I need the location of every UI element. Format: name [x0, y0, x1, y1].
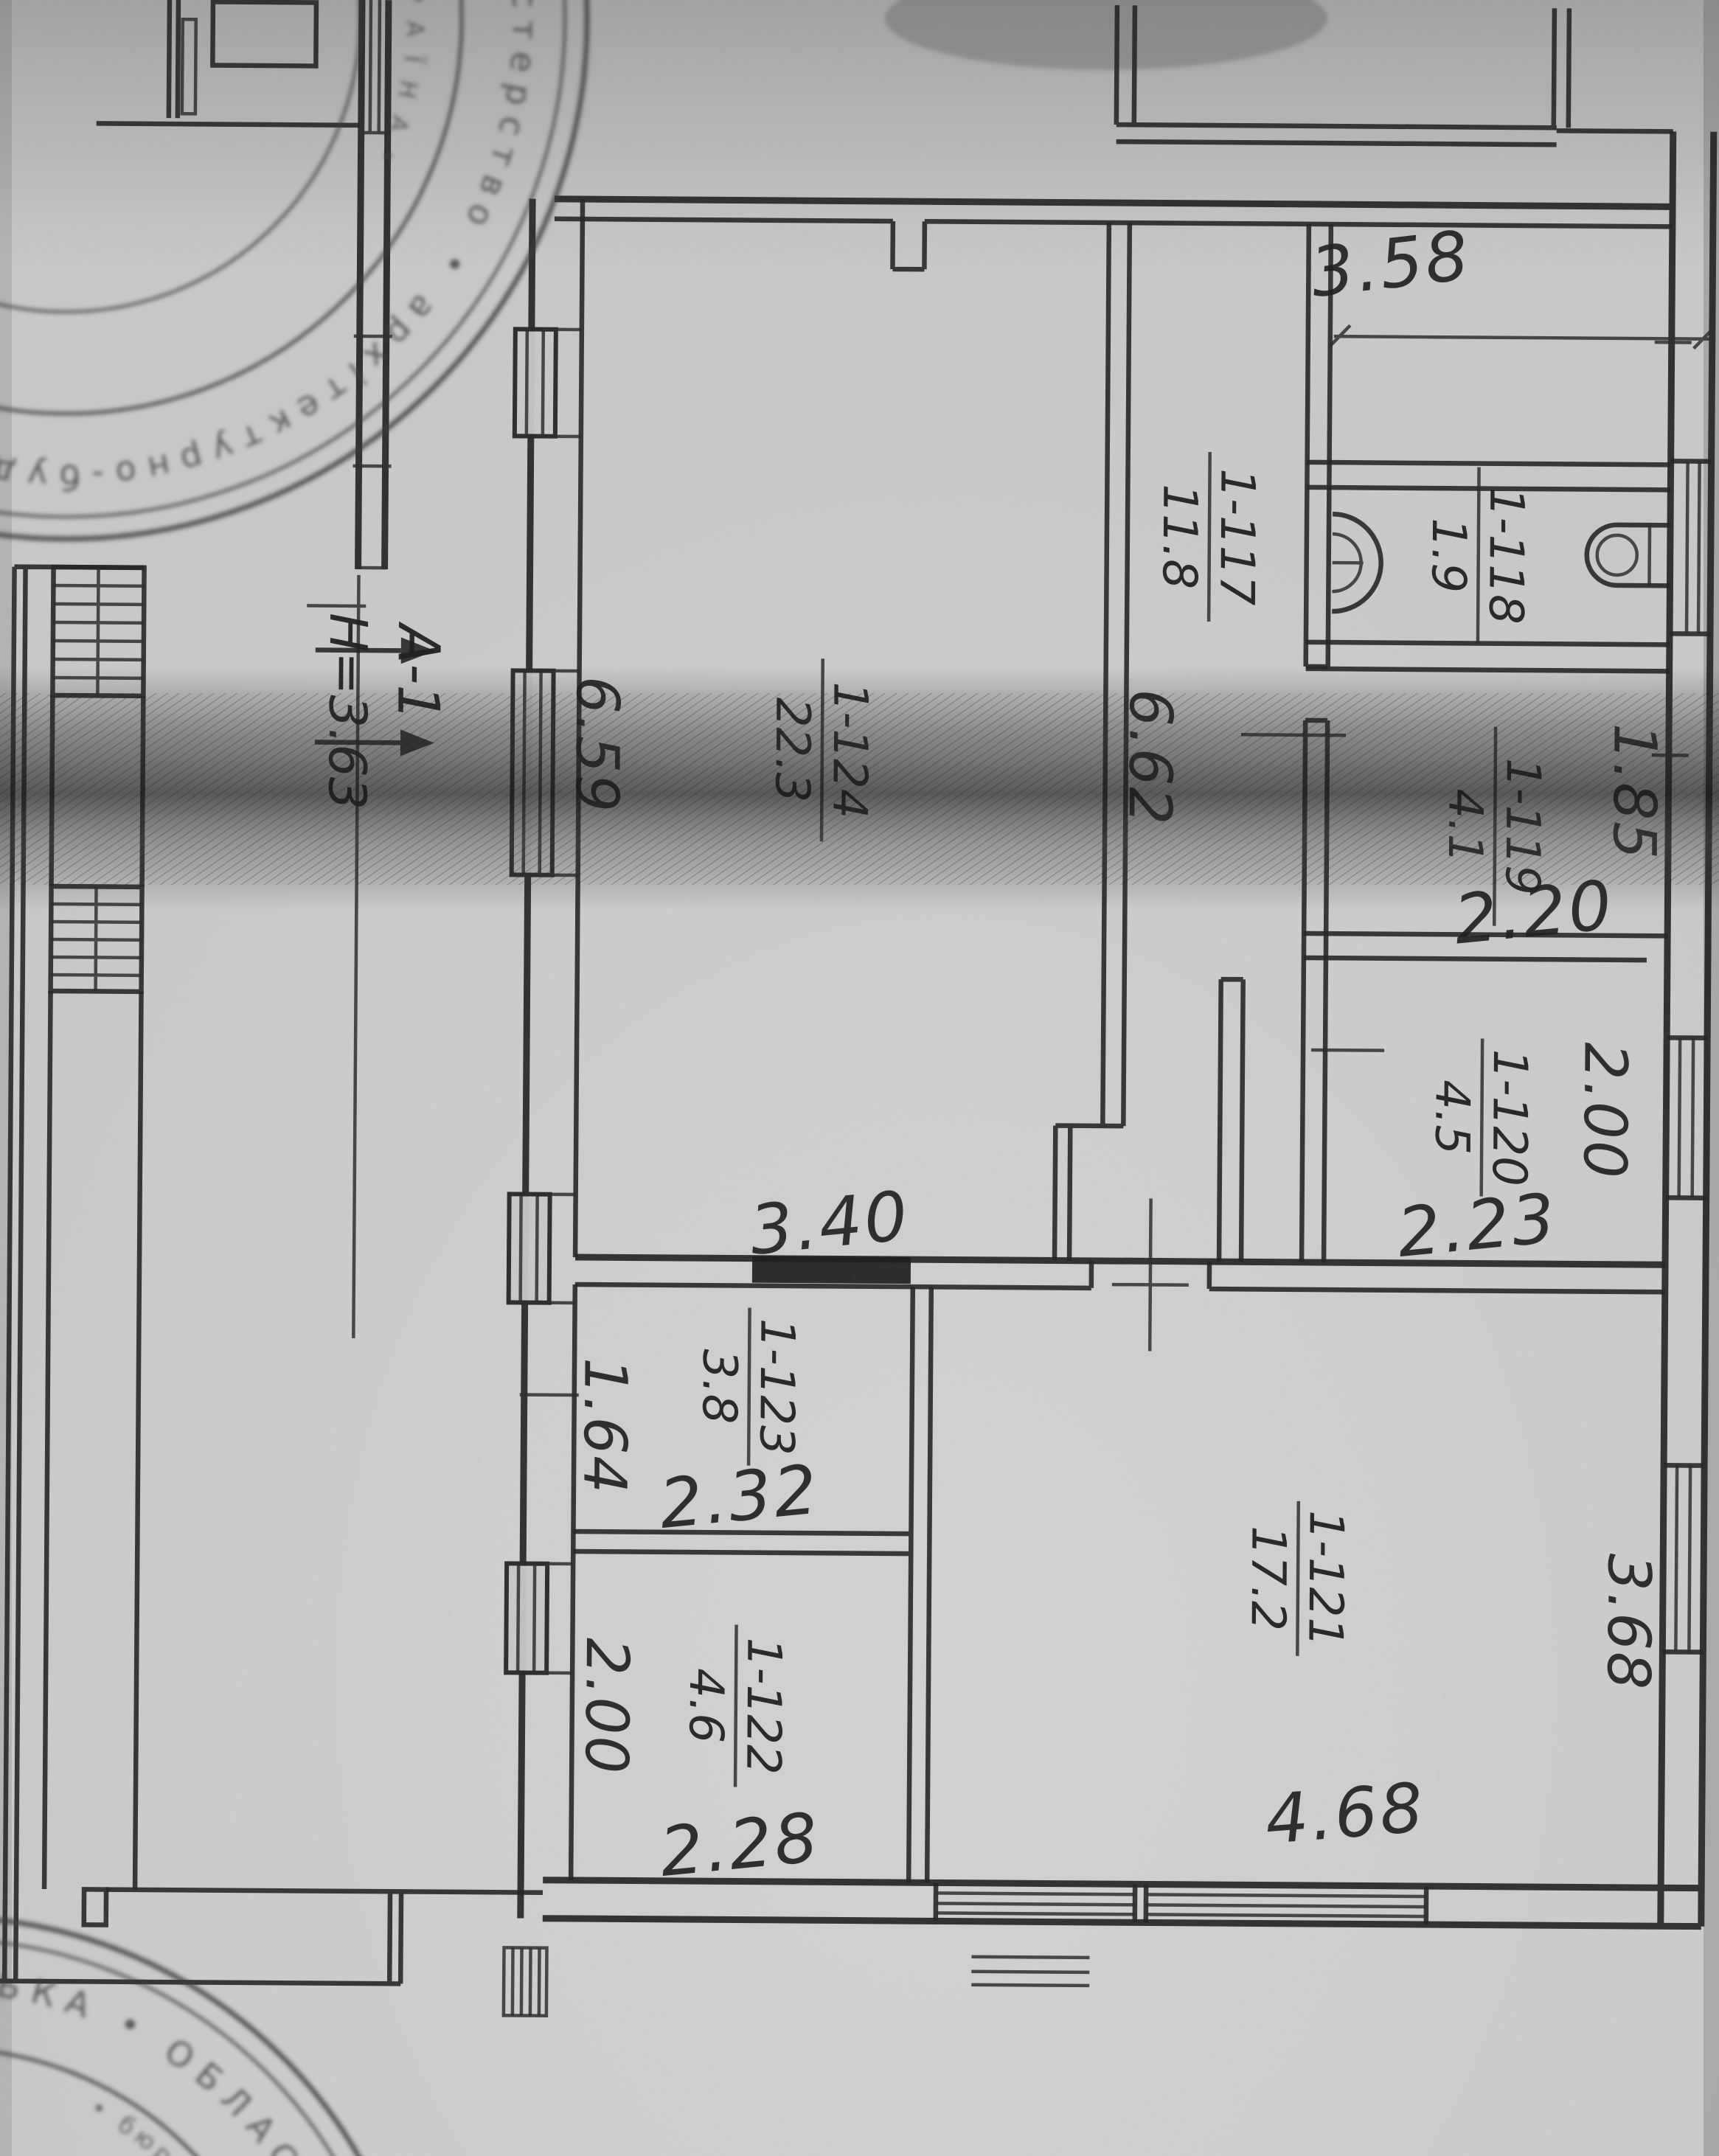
paper-grain [0, 0, 1719, 2156]
scanned-floor-plan-page: А-1 Н=3.63 1-117 11.8 1-118 1.9 1-119 4.… [0, 0, 1719, 2156]
floor-plan-svg: А-1 Н=3.63 1-117 11.8 1-118 1.9 1-119 4.… [0, 0, 1719, 2156]
